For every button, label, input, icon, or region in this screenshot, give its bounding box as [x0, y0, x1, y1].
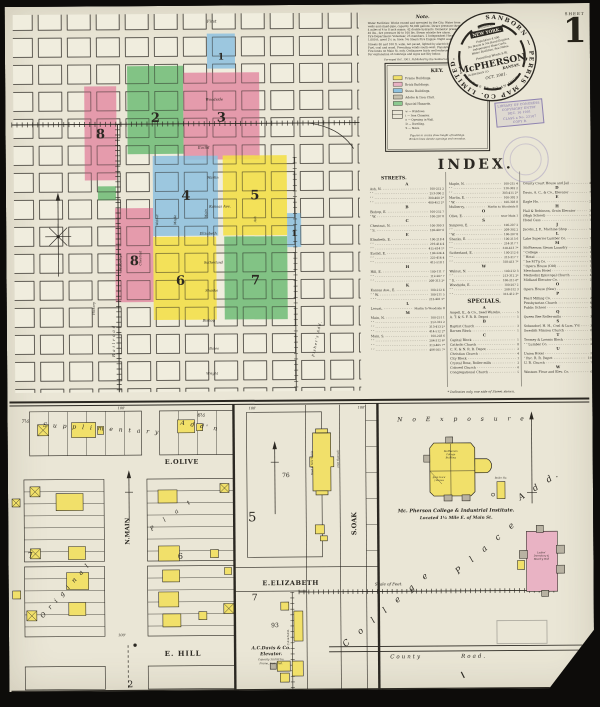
county-road-label-2: Road.: [460, 654, 487, 660]
index-column-rule: [446, 172, 448, 387]
street-label-e-hill: E. HILL: [165, 649, 202, 658]
index-entry-name: ″ ″: [371, 348, 375, 352]
index-entry-page: 100-303 8: [504, 200, 519, 204]
index-entry-name: ″ S.: [450, 279, 455, 283]
index-entry-name: Main, N.: [371, 316, 385, 320]
index-entry-name: ″ ″: [450, 288, 454, 292]
index-letter-header: L: [556, 231, 559, 236]
publisher-stamp: SANBORN — PERRIS MAP CO. LIMITED. BROADW…: [436, 1, 548, 113]
index-letter-header: C: [483, 332, 486, 337]
college-place-word-3: A d d.: [516, 468, 564, 503]
elevator-name-line2: Elevator.: [259, 651, 283, 657]
street-label-woodside: Woodside: [206, 98, 224, 102]
index-entry-page: 1: [590, 264, 592, 268]
index-entry-page: 2: [590, 245, 592, 249]
lot-divider: [25, 578, 105, 579]
index-entry-name: ″ W.: [370, 215, 376, 219]
lot-divider: [148, 625, 235, 626]
boiler-house-label: Boiler Ho.: [494, 477, 508, 480]
index-entry-page: 313-412 3*: [503, 292, 519, 296]
street-label-ash: Ash: [253, 216, 257, 223]
photo-background: 1238458671: [0, 0, 600, 707]
index-letter-header: W: [555, 364, 561, 369]
index-entry-name: ″ Pac. R. R. Depot: [524, 356, 553, 360]
index-entry-name: Sohendorf, H. H., Coal & Lum. Y'd: [524, 324, 580, 328]
index-entry-page: 1: [590, 250, 592, 254]
index-entry-page: near Main 1: [501, 214, 518, 218]
index-entry-page: 100-213 6: [504, 237, 519, 241]
dimension-100ft-mid: 100': [118, 633, 126, 637]
college-place-word-1: C o l l e g e: [341, 568, 434, 649]
index-entry-name: Lake Superior Lumber Co.: [523, 236, 566, 240]
index-column-rule: [520, 171, 522, 386]
street-label-shanks: Shanks: [205, 289, 218, 293]
college-caption-line1: Mc. Pherson College & Industrial Institu…: [397, 508, 515, 515]
index-entry-page: 225-414 4: [430, 256, 445, 260]
railroad-label: Railroad: [111, 324, 116, 358]
building: [163, 570, 180, 582]
building: [497, 482, 505, 499]
index-entry-name: Toomey & Loomis Block: [524, 338, 563, 342]
index-entry-name: ″ ″: [371, 325, 375, 329]
building: [69, 602, 86, 615]
index-entry-page: 2: [590, 342, 592, 346]
index-entry-name: ″ ″: [449, 246, 453, 250]
dimension-100ft-mid-panel: 100': [249, 406, 257, 410]
index-entry-name: Maple, N.: [449, 182, 465, 186]
index-entry-name: Simpson, E.: [449, 223, 468, 227]
panel-number-2: 2: [127, 680, 133, 690]
section-rules: [9, 398, 591, 692]
index-entry-page: 5: [517, 370, 519, 374]
index-entry-name: ″ W.: [449, 200, 455, 204]
street-label-maple: Maple: [173, 215, 177, 226]
building: [444, 495, 452, 501]
index-entry-page: 2: [517, 347, 519, 351]
index-entry-name: ″ ″ ″: [371, 297, 377, 301]
index-entry-name: Hill, E.: [370, 270, 381, 274]
index-entry-page: 5: [517, 310, 519, 314]
index-entry-name: Euclid, E.: [370, 251, 386, 255]
index-entry-page: 5: [590, 305, 592, 309]
street-label-bates: Bates: [208, 347, 219, 351]
building: [158, 546, 179, 561]
index-entry-page: 3: [589, 209, 591, 213]
index-entry-name: Shanks, E.: [449, 237, 466, 241]
index-entry-page: 6: [517, 365, 519, 369]
index-letter-header: P: [556, 291, 559, 296]
index-entry-name: ″ ″: [371, 339, 375, 343]
index-entry-page: 213-317 7: [504, 255, 519, 259]
index-entry-page: 100-203 6: [431, 334, 446, 338]
index-entry-page: 100-215 6*: [503, 278, 519, 282]
elevator-note-2: Frame, Iron Clad.: [258, 661, 283, 665]
index-entry-name: Baptist Church: [450, 324, 474, 328]
index-entry-name: Capital Block: [450, 338, 472, 342]
block-number-7: 7: [28, 551, 33, 560]
elevator-name-line1: A.C.Davis & Co.: [251, 645, 292, 651]
overview-map: 1238458671: [7, 6, 374, 399]
index-entry-page: 112-207 7: [430, 274, 445, 278]
lot-block-outline: [25, 666, 105, 690]
index-entry-page: 1: [590, 337, 592, 341]
street-label-bishop: Bishop: [202, 319, 216, 323]
index-entry-page: 100-215 4: [504, 181, 519, 185]
street-label-walnut: Walnut: [155, 214, 159, 226]
street-label-s-oak: S.OAK: [350, 512, 358, 535]
building: [199, 612, 207, 620]
index-entry-name: ″ ″: [449, 274, 453, 278]
index-entry-page: 100-300 3: [430, 223, 445, 227]
college-building: [430, 443, 495, 497]
street-label-euclid: Euclid: [197, 146, 210, 150]
index-entry-name: ″ Hotel: [523, 255, 534, 259]
index-entry-name: Merchants Hotel: [523, 269, 550, 273]
railroad-label-ckn: C.K.&N.R.R.: [286, 629, 290, 645]
index-entry-name: Methodist Episcopal Church: [523, 273, 569, 277]
index-entry-name: ″ Opera House (Old): [523, 264, 556, 268]
index-letter-header: O: [482, 208, 486, 213]
index-entry-name: Davis, A. C., & Co., Elevator: [523, 190, 569, 194]
sheet-number: 1: [555, 16, 595, 46]
copyright-stamp: LIBRARY OF CONGRESSCOPYRIGHT ENTRYDEC. 1…: [494, 98, 544, 127]
panel-number-5: 5: [248, 510, 256, 525]
index-letter-header: D: [555, 185, 559, 190]
index-letter-header: M: [555, 240, 560, 245]
index-entry-page: 7: [590, 360, 592, 364]
index-entry-page: 3: [590, 314, 592, 318]
building: [292, 661, 303, 676]
building: [280, 673, 289, 682]
building: [320, 536, 327, 541]
building: [424, 455, 430, 462]
index-letter-header: W: [481, 263, 487, 268]
index-entry-page: 1: [517, 338, 519, 342]
index-entry-page: 100-302 3: [504, 195, 519, 199]
note-title: Note.: [415, 14, 430, 20]
index-entry-page: 5: [589, 227, 591, 231]
index-entry-page: 1-8: [588, 356, 593, 360]
index-entry-name: (High School): [523, 213, 545, 217]
building: [517, 560, 524, 569]
index-entry-page: 1: [517, 356, 519, 360]
index-entry-page: 100-251 1: [430, 315, 445, 319]
index-entry-page: 313-405 7*: [429, 343, 445, 347]
index-entry-name: ″ ″: [371, 343, 375, 347]
building: [56, 494, 83, 511]
index-entry-name: ″ ″: [371, 320, 375, 324]
index-entry-page: 208-312 3: [504, 287, 519, 291]
index-entry-name: ″ ″: [370, 242, 374, 246]
index-entry-page: 1: [589, 218, 591, 222]
key-item-label: Special Hazards.: [405, 102, 431, 106]
index-entry-page: 5: [517, 315, 519, 319]
index-entry-page: 3: [590, 324, 592, 328]
index-entry-name: Kansas Ave., E.: [371, 288, 396, 292]
pencil-erased-stamp: [497, 620, 547, 643]
key-item-label: Adobe & Iron Clad.: [404, 95, 434, 99]
index-entry-page: 318-413 7*: [503, 246, 519, 250]
embossed-stamp: [503, 136, 549, 182]
college-place-word-2: P l a c e: [453, 518, 520, 578]
index-entry-page: 414-512 2*: [429, 329, 445, 333]
index-entry-page: 1: [590, 287, 592, 291]
index-entry-name: Pearl Milling Co.: [524, 296, 551, 300]
index-entry-name: ″ ″: [370, 247, 374, 251]
index-entry-name: Congregational Church: [450, 370, 488, 374]
index-entry-page: 100-111 7: [430, 269, 445, 273]
building: [13, 591, 21, 599]
index-entry-page: 6: [590, 328, 592, 332]
index-letter-header: T: [556, 332, 559, 337]
index-entry-name: ″ ″: [370, 261, 374, 265]
index-letter-header: K: [406, 282, 410, 287]
index-entry-name: Elizabeth, E.: [370, 238, 391, 242]
index-entry-page: 100-212 6: [504, 250, 519, 254]
building: [315, 525, 324, 534]
key-sign: S — Store.: [405, 126, 420, 130]
index-entry-page: 100-212 4: [430, 288, 445, 292]
building: [446, 437, 453, 443]
lot-number-6half: 6½: [197, 412, 205, 419]
index-letter-header: Q: [556, 309, 560, 314]
lot-divider: [148, 577, 235, 578]
key-item-label: Frame Buildings.: [405, 76, 431, 80]
building: [536, 525, 543, 532]
index-entry-page: 213-401 5*: [429, 297, 445, 301]
index-entry-name: Woodside, E.: [450, 283, 471, 287]
index-entry-name: Sutherland, E.: [449, 251, 472, 255]
index-entry-name: ″ ″: [449, 228, 453, 232]
index-entry-page: Marlin to Woodside 8: [488, 204, 519, 208]
index-entry-page: 100-224 4: [430, 251, 445, 255]
building: [556, 545, 564, 553]
index-entry-name: Barnes Block: [450, 329, 471, 333]
index-letter-header: S: [482, 218, 485, 223]
index-entry-page: 4: [589, 181, 591, 185]
index-entry-name: City Block: [450, 356, 467, 360]
index-entry-page: 2: [589, 199, 591, 203]
lot-divider: [148, 589, 235, 590]
index-entry-page: 100-218 4: [430, 237, 445, 241]
index-footnote: * Indicates only one side of Street show…: [448, 389, 515, 393]
building: [526, 531, 557, 591]
stable-label: Feed & Sale Stable: [311, 450, 314, 476]
college-note-2: 3 Stories: [434, 479, 445, 482]
index-entry-page: 406-505 7*: [429, 348, 445, 352]
index-entry-name: U. B. Church: [524, 361, 545, 365]
index-entry-page: 2: [590, 296, 592, 300]
index-entry-name: ″ ″: [370, 192, 374, 196]
lot-lines: [23, 410, 235, 689]
index-entry-page: 4: [590, 301, 592, 305]
index-entry-name: Midland Elevator Co.: [524, 278, 558, 282]
index-entry-name: ″ ″: [449, 191, 453, 195]
index-entry-page: 100-212 3: [504, 269, 519, 273]
lot-divider: [25, 626, 105, 627]
index-entry-page: 1: [517, 328, 519, 332]
street-label-e-elizabeth: E.ELIZABETH: [262, 579, 319, 587]
index-entry-page: 100-252 2: [430, 187, 445, 191]
index-letter-header: E: [406, 232, 409, 237]
key-swatch: [393, 82, 402, 86]
index-entry-name: ″ ″: [449, 187, 453, 191]
index-entry-page: 1: [589, 236, 591, 240]
index-entry-name: Locust,: [371, 307, 383, 311]
index-entry-page: 8: [517, 342, 519, 346]
index-entry-name: ″ S.: [370, 228, 375, 232]
index-entry-page: 219-414 4: [430, 242, 445, 246]
not-opened-note: (Not Opened): [336, 450, 340, 468]
street-label-sutherland: Sutherland: [204, 261, 224, 265]
key-item-label: Brick Buildings.: [405, 82, 429, 86]
lot-divider: [147, 538, 234, 539]
index-entry-name: Opera House (New): [524, 287, 556, 291]
elevator-note-1: Capacity 30,000 bu.: [258, 657, 285, 661]
index-entry-name: ″ ″ Lumber Co.: [524, 342, 547, 346]
index-letter-header: S: [556, 318, 559, 323]
building: [462, 495, 470, 501]
index-entry-page: 2: [590, 278, 592, 282]
index-entry-page: 318-413 7*: [503, 260, 519, 264]
index-letter-header: J: [555, 222, 558, 227]
scale-and-railroads: [292, 590, 589, 689]
index-entry-page: 213-312 2*: [503, 273, 519, 277]
building: [163, 614, 181, 627]
index-entry-page: 2: [590, 259, 592, 263]
street-label-main: Main: [204, 209, 208, 219]
index-entry-page: 100-207 8: [430, 214, 445, 218]
index-entry-page: 100-207 8: [504, 232, 519, 236]
index-entry-page: 100-407 6: [430, 228, 445, 232]
index-entry-name: ″ W.: [449, 233, 455, 237]
lot-divider: [24, 539, 104, 540]
index-entry-name: ″ College: [523, 250, 538, 254]
index-entry-name: Christian Church: [450, 352, 478, 356]
index-entry-page: 1: [590, 255, 592, 259]
index-letter-header: O: [556, 281, 560, 286]
sheet-number-badge: SHEET 1: [555, 11, 595, 46]
index-entry-page: 303-415 2*: [502, 191, 518, 195]
lot-divider: [25, 602, 105, 603]
dormitory-label-3: Board'g Hall: [533, 558, 550, 561]
index-entry-page: 100-207 2: [504, 223, 519, 227]
index-entry-name: Catholic Church: [450, 343, 476, 347]
street-label-chestnut: Chestnut: [138, 250, 142, 265]
index-streets-header: STREETS.: [381, 175, 407, 181]
index-entry-name: ″ ″ W.: [371, 293, 379, 297]
index-letter-header: H: [555, 203, 559, 208]
index-entry-page: 7: [589, 190, 591, 194]
key-footer-line: Broken lines denote openings and veranda…: [408, 137, 466, 140]
building: [159, 592, 179, 607]
index-entry-page: 415-614 1*: [429, 246, 445, 250]
index-letter-header: A: [404, 181, 408, 186]
street-label-first: First: [206, 19, 217, 24]
index-letter-header: E: [555, 194, 558, 199]
key-swatch: [393, 101, 402, 105]
dimension-100ft-right: 100': [358, 406, 366, 410]
index-entry-page: 1: [590, 268, 592, 272]
index-entry-page: 100-252 7: [430, 210, 445, 214]
building: [158, 490, 177, 503]
building: [281, 602, 289, 610]
index-entry-name: ″ ″: [450, 292, 454, 296]
index-letter-header: L: [406, 301, 409, 306]
index-entry-name: ″ Ice M'f'g Co.: [523, 259, 546, 263]
index-entry-name: Walnut, N.: [449, 269, 466, 273]
index-entry-name: Public School: [524, 305, 546, 309]
index-entry-page: 415-518 1: [430, 260, 445, 264]
street-label-n-main: N.MAIN: [124, 517, 131, 544]
college-caption-line2: Located 1¼ Mile E. of Main St.: [419, 515, 493, 521]
index-letter-header: U: [556, 346, 560, 351]
index-entry-name: Marlin, E.: [449, 196, 465, 200]
index-entry-page: 4: [590, 273, 592, 277]
map-page: 1238458671: [5, 3, 595, 692]
index-letter-header: B: [405, 204, 408, 209]
index-entry-name: Jacobs, J. F., Machine Shop: [522, 227, 567, 231]
street-label-elizabeth: Elizabeth: [199, 232, 217, 236]
index-entry-name: Ash, N.: [369, 187, 382, 191]
index-entry-page: 100-211 5: [430, 292, 445, 296]
index-entry-page: 208-313 2*: [429, 279, 445, 283]
index-entry-page: 4: [517, 351, 519, 355]
building: [557, 565, 565, 573]
index-entry-name: Bishop, E.: [370, 210, 386, 214]
key-swatch: [393, 95, 402, 99]
index-entry-name: Eagle Ho.: [523, 200, 539, 204]
college-room-label-3: Building: [445, 456, 457, 459]
index-entry-page: 208-302 2: [504, 227, 519, 231]
index-entry-name: Hail & Robinson, Grain Elevator: [523, 209, 576, 213]
index-entry-name: Colored Church: [450, 366, 476, 370]
index-entry-page: 3: [517, 324, 519, 328]
index-letter-header: M: [406, 310, 411, 315]
building: [294, 611, 303, 641]
key-item-label: Stone Buildings.: [405, 89, 430, 93]
index-entry-page: 216-302 2: [504, 186, 519, 190]
index-entry-name: Chestnut, N.: [370, 224, 390, 228]
index-entry-page: 400-452 2*: [428, 200, 444, 204]
index-entry-name: Angell, E., & Co., Seed Wareho.: [449, 310, 501, 314]
index-entry-name: ″ ″: [449, 260, 453, 264]
key-swatch: [393, 76, 402, 80]
detail-maps: 7½S u p p l i m e n t a r yA d d' n6½100…: [9, 397, 591, 694]
street-label-e-olive: E.OLIVE: [165, 458, 199, 466]
scale-of-feet-label: Scale of Feet.: [375, 581, 403, 586]
block-number-6: 6: [178, 552, 183, 561]
index-entry-name: C. K. & N. R. R. Depot: [450, 347, 487, 351]
lot-divider: [24, 515, 104, 516]
lot-divider: [148, 613, 235, 614]
index-entry-page: Marlin to Woodside 8: [414, 306, 445, 310]
block-number-93: 93: [271, 622, 279, 629]
index-entry-name: ″ ″: [371, 330, 375, 334]
index-entry-name: ″ ″: [371, 279, 375, 283]
index-entry-name: McPherson Steam Laundry: [523, 246, 567, 250]
index-entry-name: ″ ″: [370, 256, 374, 260]
index-entry-page: 204-312 6*: [429, 338, 445, 342]
index-entry-name: Union Hotel: [524, 351, 544, 355]
index-entry-page: 2: [517, 361, 519, 365]
index-entry-name: Hotel Cass: [523, 218, 541, 222]
index-letter-header: B: [483, 318, 486, 323]
key-title: KEY.: [431, 68, 444, 74]
index-entry-page: 300-400 2*: [428, 196, 444, 200]
building: [225, 567, 232, 574]
building: [210, 550, 218, 558]
